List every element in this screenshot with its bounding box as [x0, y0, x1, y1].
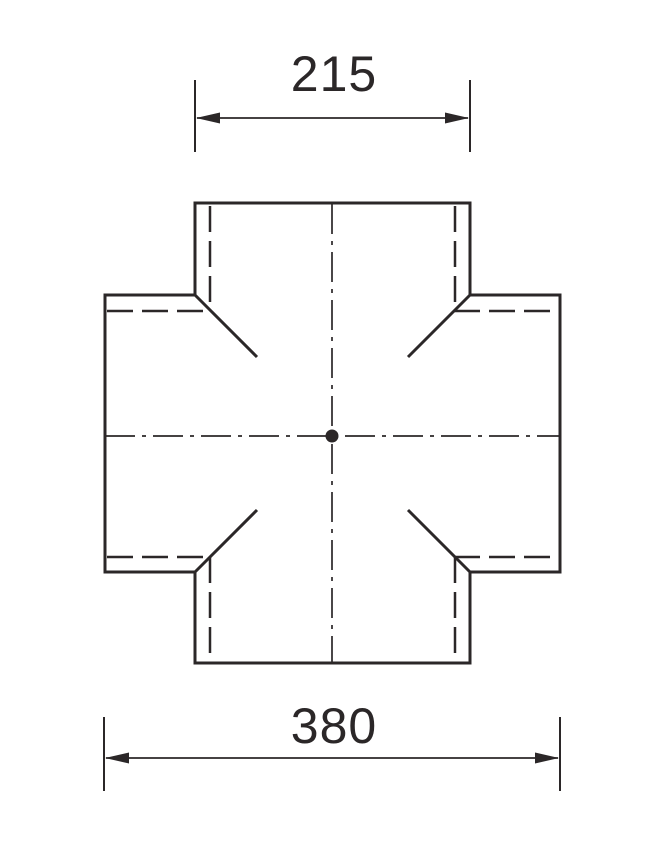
chamfer-line-bottom-right [408, 510, 470, 572]
dimension-bottom: 380 [104, 698, 560, 791]
arrowhead-left-icon [196, 113, 220, 124]
center-lines [105, 204, 560, 662]
chamfer-line-top-right [408, 295, 470, 357]
chamfer-line-top-left [195, 295, 257, 357]
dimension-label-bottom: 380 [291, 698, 377, 754]
dimension-label-top: 215 [291, 46, 377, 102]
arrowhead-right-icon [445, 113, 469, 124]
arrowhead-left-icon [105, 753, 129, 764]
cross-body [105, 203, 560, 663]
drawing-svg: 215 [0, 0, 672, 842]
center-point [326, 430, 339, 443]
chamfer-line-bottom-left [195, 510, 257, 572]
arrowhead-right-icon [535, 753, 559, 764]
dimension-top: 215 [195, 46, 470, 152]
technical-drawing-canvas: 215 [0, 0, 672, 842]
